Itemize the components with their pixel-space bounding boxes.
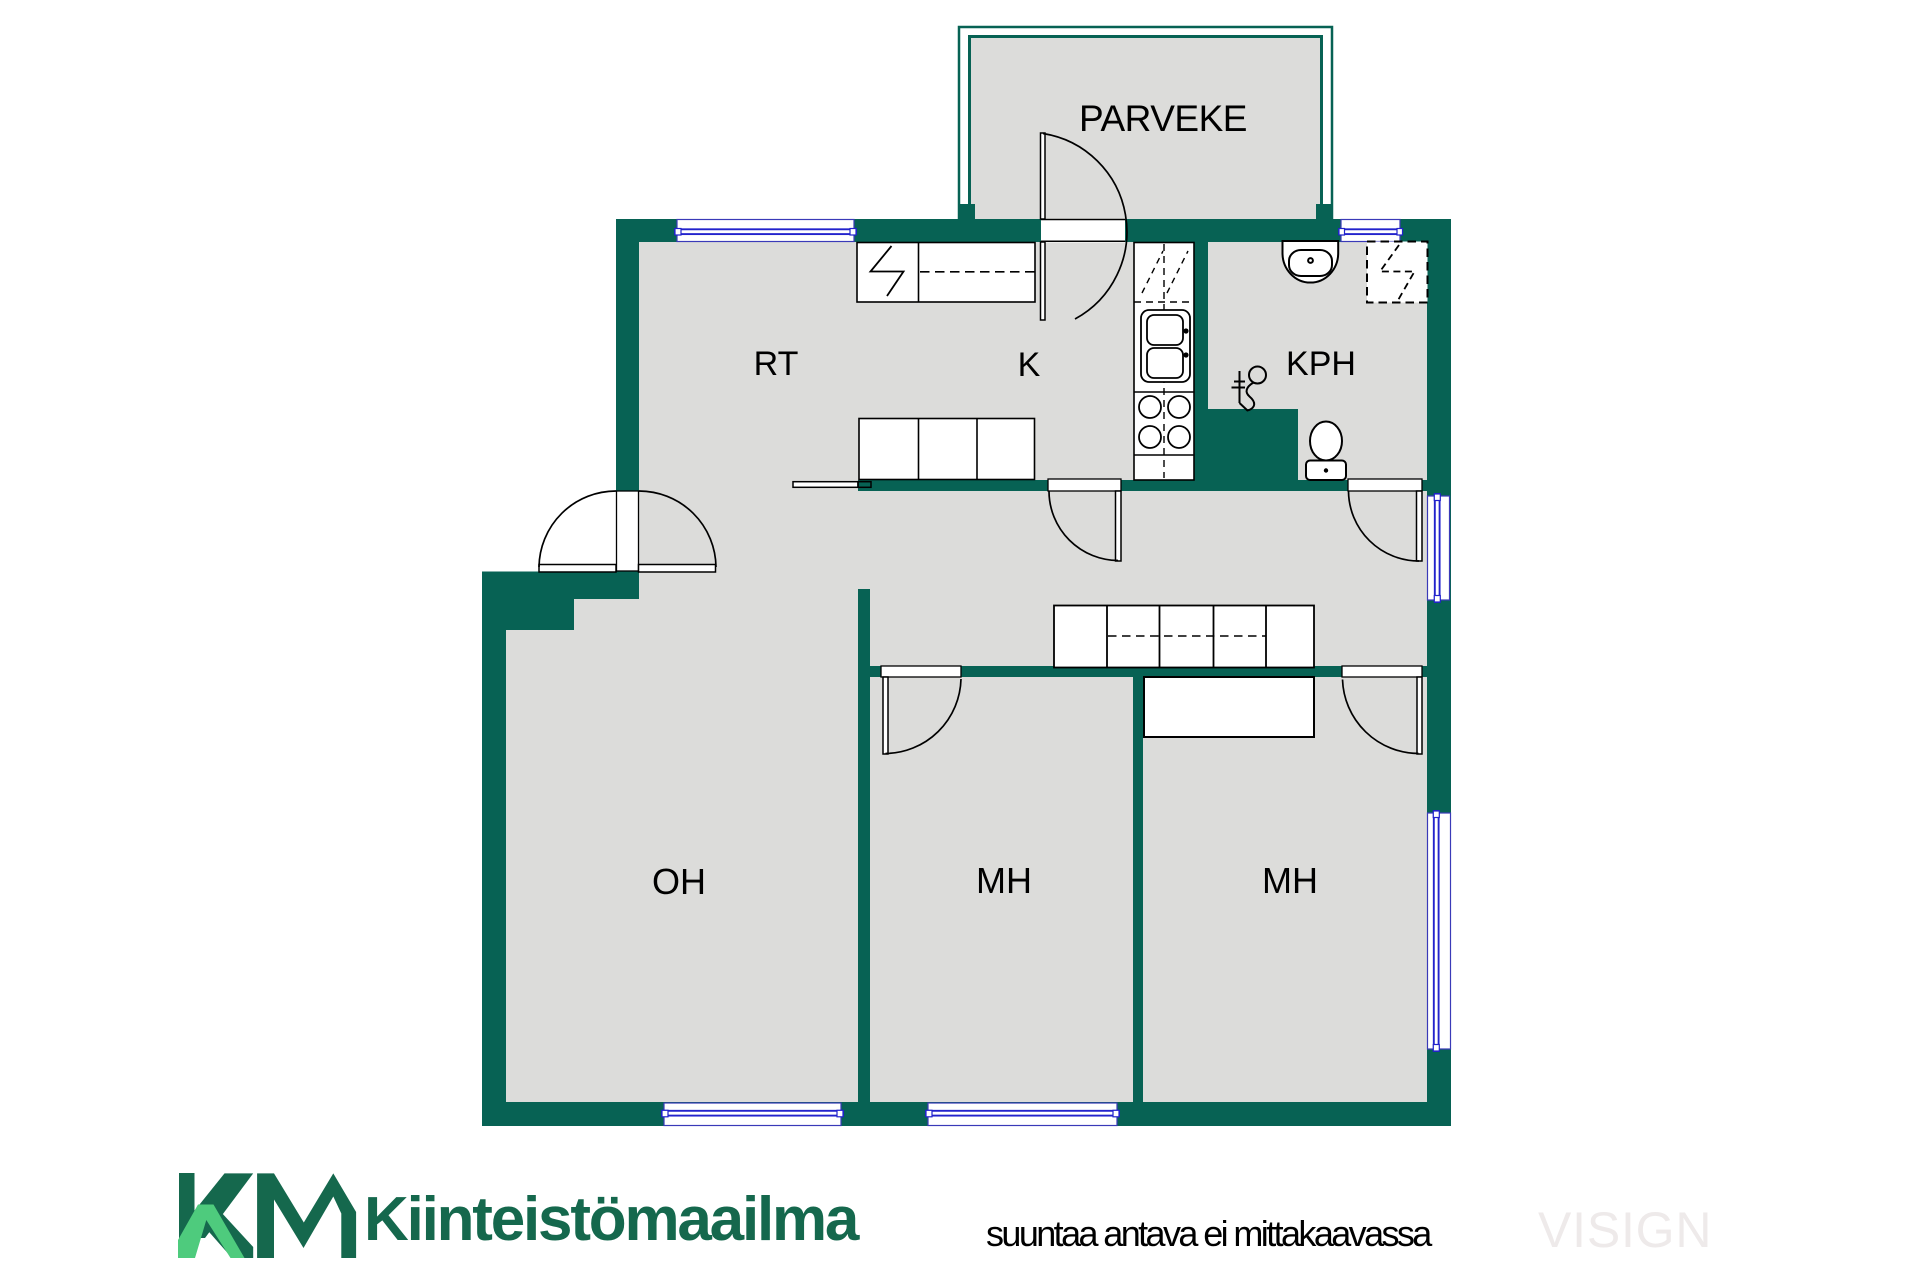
svg-text:VISIGN: VISIGN [1538, 1202, 1712, 1258]
svg-text:RT: RT [754, 345, 799, 383]
svg-text:suuntaa antava ei mittakaavass: suuntaa antava ei mittakaavassa [986, 1213, 1433, 1254]
svg-text:Kiinteistömaailma: Kiinteistömaailma [364, 1185, 860, 1254]
svg-text:MH: MH [1262, 860, 1318, 901]
svg-text:KPH: KPH [1286, 345, 1356, 383]
svg-text:MH: MH [976, 860, 1032, 901]
svg-text:PARVEKE: PARVEKE [1079, 98, 1247, 139]
svg-text:OH: OH [652, 861, 706, 902]
svg-text:K: K [1018, 346, 1041, 384]
